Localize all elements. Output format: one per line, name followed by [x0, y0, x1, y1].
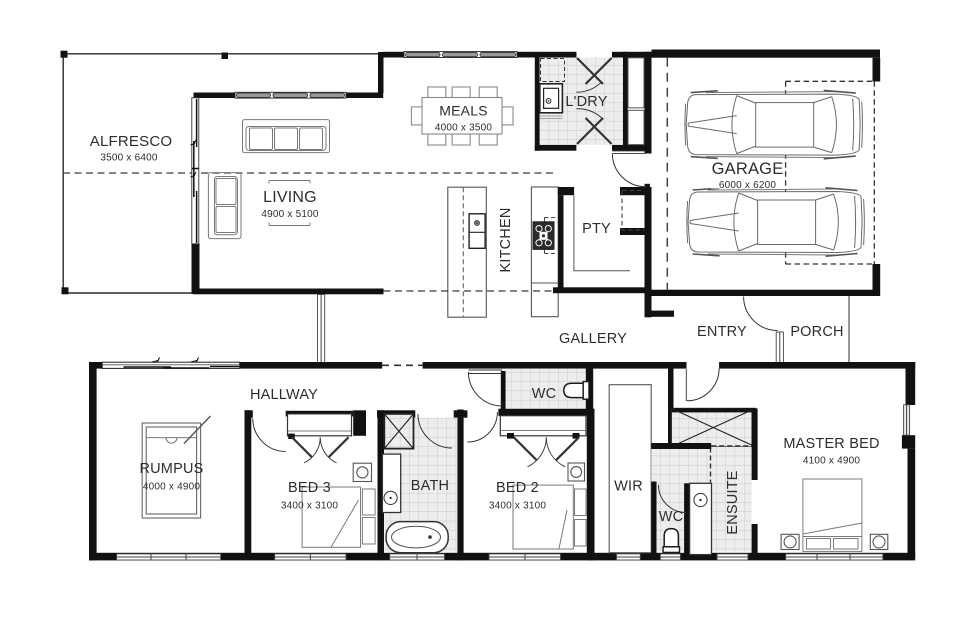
- svg-text:BATH: BATH: [411, 478, 449, 494]
- svg-text:WC: WC: [532, 386, 557, 402]
- svg-text:WC: WC: [659, 509, 684, 525]
- svg-text:4000 x 3500: 4000 x 3500: [435, 123, 492, 134]
- svg-text:ALFRESCO: ALFRESCO: [90, 133, 172, 150]
- svg-text:MASTER BED: MASTER BED: [783, 436, 879, 452]
- svg-text:ENSUITE: ENSUITE: [725, 470, 741, 534]
- svg-text:KITCHEN: KITCHEN: [498, 207, 514, 272]
- svg-text:3400 x 3100: 3400 x 3100: [489, 501, 546, 512]
- svg-text:BED 3: BED 3: [288, 480, 331, 496]
- svg-text:GALLERY: GALLERY: [559, 331, 627, 347]
- svg-text:4900 x 5100: 4900 x 5100: [261, 209, 318, 220]
- svg-text:PORCH: PORCH: [790, 324, 843, 340]
- svg-text:4000 x 4900: 4000 x 4900: [143, 482, 200, 493]
- svg-text:LIVING: LIVING: [263, 189, 317, 206]
- svg-text:6000 x 6200: 6000 x 6200: [719, 180, 776, 191]
- svg-text:HALLWAY: HALLWAY: [250, 387, 318, 403]
- svg-text:L'DRY: L'DRY: [565, 94, 607, 110]
- svg-text:3500 x 6400: 3500 x 6400: [100, 153, 157, 164]
- svg-text:MEALS: MEALS: [439, 103, 487, 119]
- svg-text:BED 2: BED 2: [496, 480, 539, 496]
- svg-text:3400 x 3100: 3400 x 3100: [281, 501, 338, 512]
- svg-text:RUMPUS: RUMPUS: [139, 461, 203, 477]
- svg-text:ENTRY: ENTRY: [697, 324, 747, 340]
- svg-text:WIR: WIR: [614, 479, 643, 495]
- svg-text:4100 x 4900: 4100 x 4900: [803, 456, 860, 467]
- svg-text:PTY: PTY: [582, 221, 611, 237]
- svg-text:GARAGE: GARAGE: [712, 160, 784, 178]
